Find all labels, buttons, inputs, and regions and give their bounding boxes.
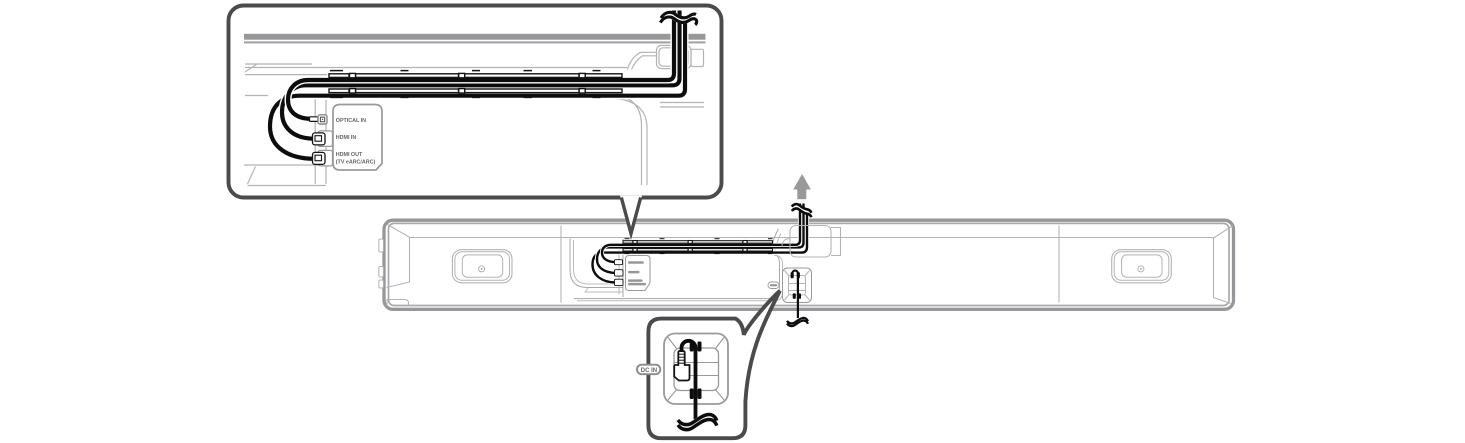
- svg-text:OPTICAL IN: OPTICAL IN: [336, 118, 366, 124]
- svg-text:HDMI OUT: HDMI OUT: [336, 152, 363, 158]
- svg-text:DC IN: DC IN: [641, 368, 657, 374]
- svg-text:(TV eARC/ARC): (TV eARC/ARC): [336, 160, 376, 166]
- svg-text:HDMI IN: HDMI IN: [336, 135, 357, 141]
